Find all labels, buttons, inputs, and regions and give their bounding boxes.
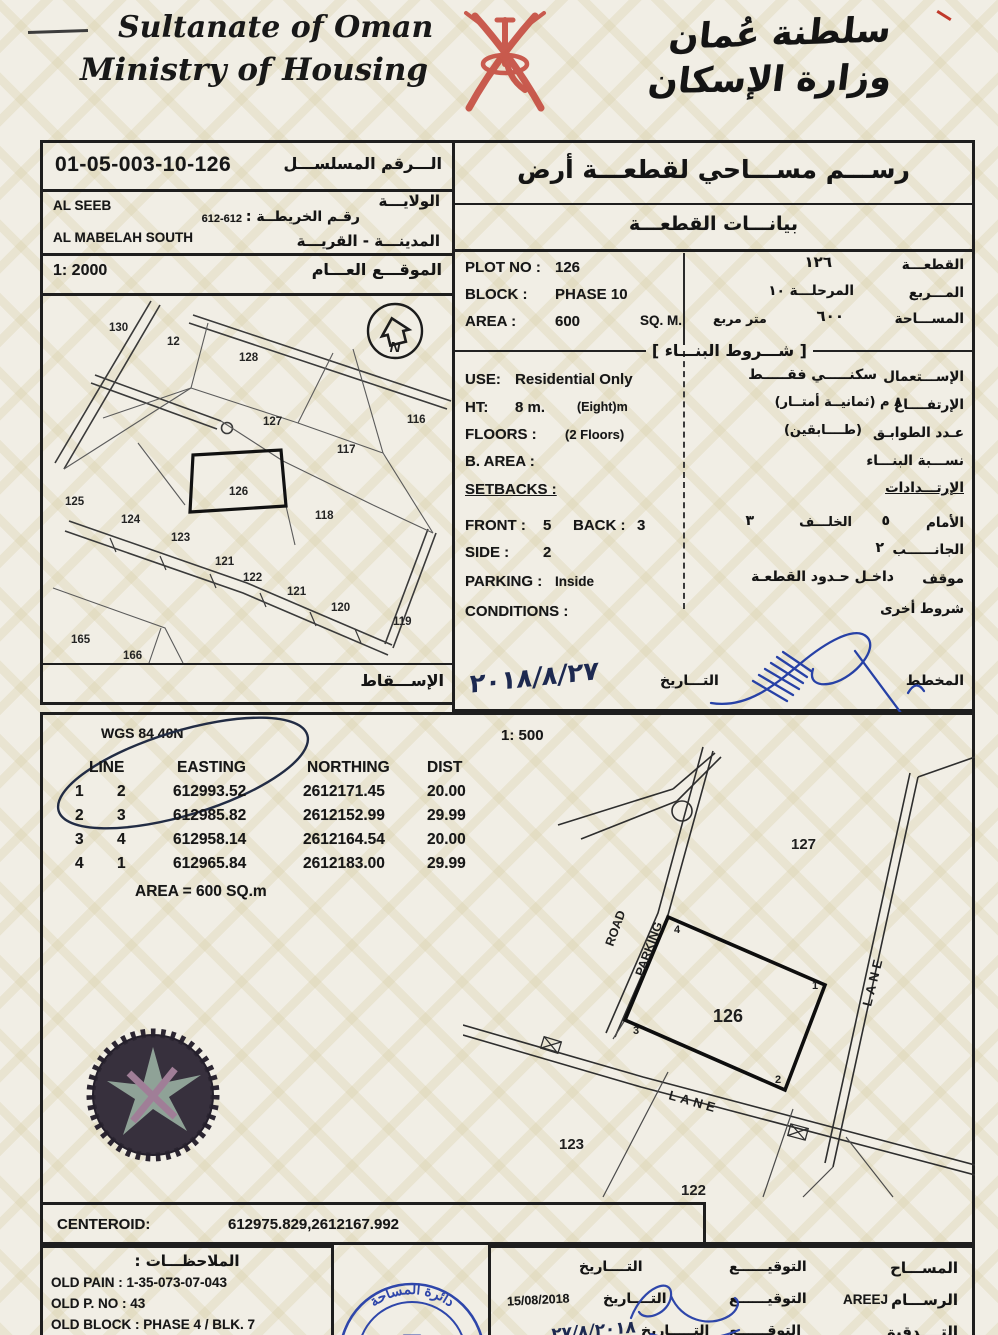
parking-label-ar: موقف <box>922 571 964 587</box>
cell: 4 <box>75 855 84 873</box>
cell: 2612164.54 <box>303 831 385 849</box>
coordinates-row: 4 1 612965.84 2612183.00 29.99 <box>75 855 505 879</box>
draftsman-signature-scribble <box>621 1274 751 1335</box>
coordinates-row: 2 3 612985.82 2612152.99 29.99 <box>75 807 505 831</box>
site-plot-label: 122 <box>243 572 262 584</box>
draftsman-name: AREEJ <box>843 1292 888 1307</box>
north-label: N <box>390 339 402 356</box>
parking-value-ar: داخـل حـدود القطعـة <box>751 569 894 585</box>
scanned-survey-document: Sultanate of Oman Ministry of Housing سل… <box>0 0 998 1335</box>
side-label-ar: الجانــــــب <box>892 542 964 558</box>
projection-label: الإســـقاط <box>360 671 444 690</box>
use-label-ar: الإســـتعمال <box>883 369 964 385</box>
plot-no-value: 126 <box>555 259 580 276</box>
role-label: التــــدقيق <box>882 1323 958 1335</box>
site-plot-label: 127 <box>263 416 282 428</box>
corner-label: 1 <box>812 980 818 992</box>
deed-title: رســـم مســـاحي لقطعـــة أرض <box>455 143 972 184</box>
left-column: 01-05-003-10-126 الـــرقم المسلســـل AL … <box>40 140 455 705</box>
notes-box: الملاحظـــات : OLD PAIN : 1-35-073-07-04… <box>40 1245 334 1335</box>
serial-number: 01-05-003-10-126 <box>55 153 231 177</box>
approval-strip: ٢٠١٨/٨/٢٧ التـــاريخ المخطط <box>455 651 972 709</box>
floors-label: FLOORS : <box>465 426 537 443</box>
road-label: ROAD <box>603 909 629 948</box>
back-label: BACK : <box>573 517 626 534</box>
site-plot-label: 125 <box>65 496 85 508</box>
site-plot-label: 130 <box>109 322 128 334</box>
location-row: AL SEEB AL MABELAH SOUTH الولايـــة رقـم… <box>43 189 452 256</box>
site-plot-label: 126 <box>229 486 248 498</box>
other-conditions-label-ar: شروط أخرى <box>880 601 964 617</box>
use-value-ar: سكنـــــي فقـــــط <box>748 367 877 383</box>
parking-label: PARKING : <box>465 573 542 590</box>
site-plot-label: 119 <box>393 616 412 628</box>
serial-row: 01-05-003-10-126 الـــرقم المسلســـل <box>43 143 452 192</box>
area-note-row: AREA = 600 SQ.m <box>75 879 505 903</box>
deed-subtitle: بيانـــات القطعـــة <box>455 203 972 235</box>
site-plot-label: 166 <box>123 650 142 662</box>
front-value-ar: ٥ <box>881 513 890 529</box>
use-value: Residential Only <box>515 371 633 388</box>
plot-data-area: PLOT NO : 126 ١٢٦ القطعـــة BLOCK : PHAS… <box>455 249 972 651</box>
neighbor-plot-label: 127 <box>791 836 816 853</box>
north-arrow-icon: N <box>368 304 422 358</box>
site-plot-label: 121 <box>287 586 307 598</box>
site-plot-label: 128 <box>239 352 259 364</box>
height-label: HT: <box>465 399 488 416</box>
parking-value: Inside <box>555 574 594 589</box>
cell: 20.00 <box>427 783 466 801</box>
cell: 612958.14 <box>173 831 246 849</box>
date-label: التــــاريخ <box>579 1259 643 1275</box>
col-line: LINE <box>89 759 124 777</box>
area-value-ar: ٦٠٠ <box>817 307 844 325</box>
cell: 29.99 <box>427 855 466 873</box>
centeroid-label: CENTEROID: <box>57 1216 150 1233</box>
site-plot-label: 12 <box>167 336 180 348</box>
floors-value-ar: (طــــابقين) <box>784 423 862 438</box>
built-area-label-ar: نســـبة البنـــاء <box>866 453 964 469</box>
coordinates-table: LINE EASTING NORTHING DIST 1 2 612993.52… <box>75 759 505 903</box>
neighbor-plot-label: 122 <box>681 1182 706 1199</box>
floors-label-ar: عـدد الطوابـق <box>873 425 964 441</box>
plot-no-value-ar: ١٢٦ <box>805 253 832 271</box>
date-value: 15/08/2018 <box>507 1291 570 1308</box>
planner-signature-scribble <box>703 623 933 723</box>
site-map-sketch: 130 12 128 127 116 117 126 125 124 118 1… <box>43 293 452 665</box>
notes-title: الملاحظـــات : <box>43 1248 331 1270</box>
divider-line <box>455 350 646 352</box>
back-value-ar: ٣ <box>745 513 754 529</box>
plot-no-label-ar: القطعـــة <box>902 257 964 273</box>
old-pain-note: OLD PAIN : 1-35-073-07-043 <box>51 1275 227 1290</box>
lane-label: LANE <box>667 1087 721 1116</box>
cell: 612965.84 <box>173 855 246 873</box>
area-unit: SQ. M. <box>640 313 682 328</box>
cell: 3 <box>117 807 126 825</box>
site-plot-label: 165 <box>71 634 91 646</box>
site-plot-label: 120 <box>331 602 350 614</box>
column-divider-dashed <box>683 351 685 609</box>
area-value: 600 <box>555 313 580 330</box>
col-dist: DIST <box>427 759 462 777</box>
site-plot-label: 118 <box>315 510 334 522</box>
cell: 612993.52 <box>173 783 246 801</box>
back-value: 3 <box>637 517 645 534</box>
site-map-scale: 1: 2000 <box>53 262 107 280</box>
front-label: FRONT : <box>465 517 526 534</box>
map-no-value: 612-612 <box>202 213 242 225</box>
floors-value: (2 Floors) <box>565 427 624 442</box>
height-note: (Eight)m <box>577 400 628 414</box>
role-label: الرســـام <box>891 1291 958 1309</box>
deed-subtitle-row: بيانـــات القطعـــة <box>455 203 972 252</box>
signatures-box: التــــاريخ التوقيــــــع المســـاح 15/0… <box>488 1245 975 1335</box>
old-block-note: OLD BLOCK : PHASE 4 / BLK. 7 <box>51 1317 255 1332</box>
column-divider-solid <box>683 253 685 345</box>
lane-label: LANE <box>859 954 886 1007</box>
corner-label: 4 <box>674 924 681 936</box>
ministry-title-ar-2: وزارة الإسكان <box>607 57 933 103</box>
back-label-ar: الخلـــف <box>799 515 852 530</box>
coordinates-row: 3 4 612958.14 2612164.54 20.00 <box>75 831 505 855</box>
wilaya-value: AL SEEB <box>53 198 111 213</box>
cell: 20.00 <box>427 831 466 849</box>
height-value: 8 m. <box>515 399 545 416</box>
front-label-ar: الأمام <box>926 515 964 531</box>
cell: 1 <box>117 855 126 873</box>
cell: 2 <box>75 807 84 825</box>
survey-dept-stamp-icon: دائرة المساحة ★ ★ <box>334 1256 490 1335</box>
corner-label: 2 <box>775 1074 781 1086</box>
cell: 2 <box>117 783 126 801</box>
col-easting: EASTING <box>177 759 246 777</box>
site-map-highlight-plot <box>190 450 286 512</box>
height-value-ar: ٨ م (ثمانيــة أمتــار) <box>775 395 902 410</box>
cell: 4 <box>117 831 126 849</box>
deed-title-row: رســـم مســـاحي لقطعـــة أرض <box>455 143 972 205</box>
area-note: AREA = 600 SQ.m <box>135 883 267 901</box>
parking-label: PARKING <box>633 920 666 978</box>
cell: 2612152.99 <box>303 807 385 825</box>
site-plot-label: 123 <box>171 532 190 544</box>
cell: 29.99 <box>427 807 466 825</box>
side-value: 2 <box>543 544 551 561</box>
site-map-scale-row: 1: 2000 الموقـــع العـــام <box>43 253 452 296</box>
building-conditions-title: [ شـــروط البنـــاء ] <box>652 341 807 360</box>
block-value-ar: المرحلـــة ١٠ <box>768 283 854 299</box>
site-plot-label: 124 <box>121 514 141 526</box>
cell: 2612183.00 <box>303 855 385 873</box>
area-label: AREA : <box>465 313 516 330</box>
detail-map-sketch: 126 4 1 2 3 127 123 122 ROAD PARKING LAN… <box>463 737 975 1199</box>
site-plot-label: 121 <box>215 556 235 568</box>
role-label: المســـاح <box>890 1259 958 1277</box>
cell: 3 <box>75 831 84 849</box>
right-column: رســـم مســـاحي لقطعـــة أرض بيانـــات ا… <box>452 140 975 712</box>
coordinates-row: 1 2 612993.52 2612171.45 20.00 <box>75 783 505 807</box>
built-area-label: B. AREA : <box>465 453 535 470</box>
col-northing: NORTHING <box>307 759 390 777</box>
old-plot-no-note: OLD P. NO : 43 <box>51 1296 145 1311</box>
projection-strip: الإســـقاط <box>43 663 452 702</box>
ministry-title-en-1: Sultanate of Oman <box>118 10 433 45</box>
national-emblem-icon <box>455 6 555 116</box>
detail-plot-number: 126 <box>713 1006 743 1026</box>
header-dash <box>28 29 88 34</box>
approval-date-handwritten: ٢٠١٨/٨/٢٧ <box>469 656 599 700</box>
cell: 2612171.45 <box>303 783 385 801</box>
block-label: BLOCK : <box>465 286 528 303</box>
front-value: 5 <box>543 517 551 534</box>
ministry-title-ar-1: سلطنة عُمان <box>617 8 943 59</box>
corner-label: 3 <box>633 1025 639 1037</box>
coordinates-header-row: LINE EASTING NORTHING DIST <box>75 759 505 783</box>
neighbor-plot-label: 123 <box>559 1136 584 1153</box>
cell: 1 <box>75 783 84 801</box>
town-label: المدينـــة - القريـــة <box>297 232 440 250</box>
site-plot-label: 116 <box>407 414 426 426</box>
site-map-title: الموقـــع العـــام <box>312 260 442 279</box>
area-unit-ar: متر مربع <box>713 311 767 326</box>
ministry-title-en-2: Ministry of Housing <box>80 52 428 88</box>
hologram-stamp-icon <box>83 1025 223 1165</box>
setbacks-label: SETBACKS : <box>465 481 557 498</box>
block-label-ar: المـــربع <box>909 285 964 301</box>
centeroid-value: 612975.829,2612167.992 <box>228 1216 399 1233</box>
serial-label: الـــرقم المسلســـل <box>284 154 442 173</box>
town-value: AL MABELAH SOUTH <box>53 230 193 245</box>
height-label-ar: الإرتفــــاع <box>894 397 964 413</box>
block-value: PHASE 10 <box>555 286 628 303</box>
sign-label: التوقيــــــع <box>729 1259 807 1275</box>
cell: 612985.82 <box>173 807 246 825</box>
conditions-label: CONDITIONS : <box>465 603 568 620</box>
side-value-ar: ٢ <box>875 540 884 556</box>
building-conditions-divider: [ شـــروط البنـــاء ] <box>455 341 972 360</box>
use-label: USE: <box>465 371 501 388</box>
map-no-label: رقـم الخريطــة : <box>246 209 360 225</box>
area-label-ar: المســـاحة <box>895 311 964 327</box>
site-plot-label: 117 <box>337 444 356 456</box>
centeroid-box: CENTEROID: 612975.829,2612167.992 <box>43 1202 706 1248</box>
plot-no-label: PLOT NO : <box>465 259 541 276</box>
side-label: SIDE : <box>465 544 509 561</box>
divider-line <box>813 350 972 352</box>
wilaya-label: الولايـــة <box>379 192 440 210</box>
setbacks-label-ar: الإرتـــدادات <box>885 480 964 496</box>
survey-panel: 1: 500 WGS 84 40N LINE EASTING NORTHING … <box>40 712 975 1245</box>
